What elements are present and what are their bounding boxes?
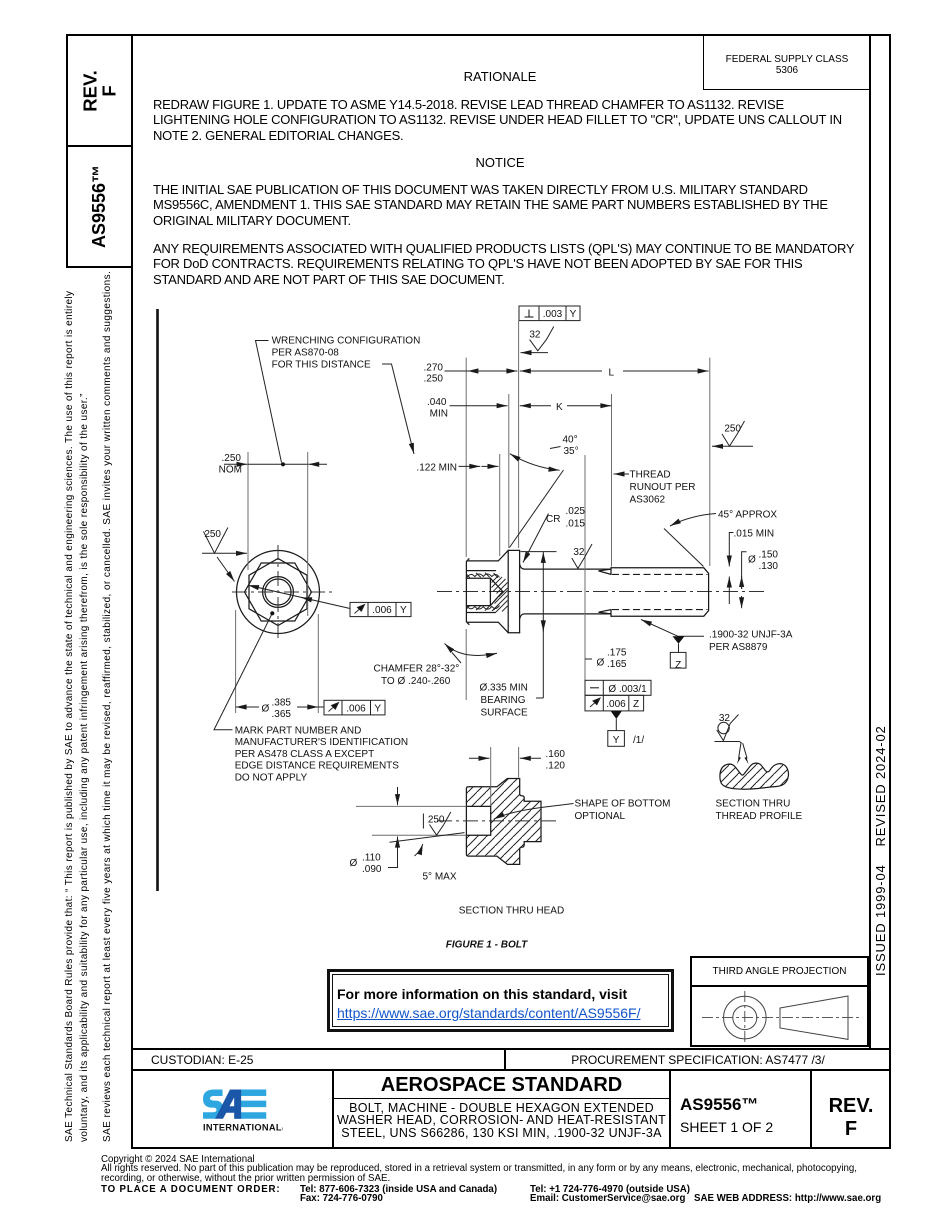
svg-text:.250: .250 xyxy=(222,453,242,464)
svg-text:PER AS8879: PER AS8879 xyxy=(709,642,768,653)
svg-text:MARK PART NUMBER AND: MARK PART NUMBER AND xyxy=(235,726,362,737)
svg-text:.015: .015 xyxy=(566,519,586,530)
svg-text:FIGURE 1 - BOLT: FIGURE 1 - BOLT xyxy=(446,940,528,951)
svg-text:250: 250 xyxy=(428,814,445,825)
svg-text:Ø: Ø xyxy=(350,858,358,869)
svg-text:.175: .175 xyxy=(607,647,627,658)
svg-text:.120: .120 xyxy=(546,760,566,771)
svg-text:NOM: NOM xyxy=(219,465,242,476)
svg-text:L: L xyxy=(609,367,615,378)
svg-text:Y: Y xyxy=(374,703,381,714)
svg-text:.090: .090 xyxy=(362,864,382,875)
svg-text:MIN: MIN xyxy=(430,408,448,419)
svg-text:.365: .365 xyxy=(272,709,292,720)
svg-text:.130: .130 xyxy=(759,561,779,572)
svg-text:Y: Y xyxy=(400,605,407,616)
svg-text:BEARING: BEARING xyxy=(481,695,526,706)
svg-text:32: 32 xyxy=(529,330,541,341)
svg-text:.110: .110 xyxy=(362,852,381,863)
svg-text:AS3062: AS3062 xyxy=(630,495,666,506)
svg-text:EDGE DISTANCE REQUIREMENTS: EDGE DISTANCE REQUIREMENTS xyxy=(235,761,400,772)
svg-text:INTERNATIONAL®: INTERNATIONAL® xyxy=(203,1122,283,1132)
svg-text:/1/: /1/ xyxy=(633,735,644,746)
svg-text:45° APPROX: 45° APPROX xyxy=(718,510,777,521)
svg-text:Y: Y xyxy=(613,735,620,746)
svg-text:TO Ø .240-.260: TO Ø .240-.260 xyxy=(381,676,451,687)
svg-text:FOR THIS DISTANCE: FOR THIS DISTANCE xyxy=(272,360,371,371)
svg-text:Ø.335 MIN: Ø.335 MIN xyxy=(480,683,528,694)
svg-text:SECTION THRU HEAD: SECTION THRU HEAD xyxy=(459,905,564,916)
svg-text:PER AS870-08: PER AS870-08 xyxy=(272,348,340,359)
svg-text:.040: .040 xyxy=(427,397,447,408)
svg-text:Ø: Ø xyxy=(597,657,605,668)
svg-text:32: 32 xyxy=(573,547,585,558)
svg-text:.015 MIN: .015 MIN xyxy=(734,529,775,540)
svg-text:.006: .006 xyxy=(606,699,626,710)
svg-text:40°: 40° xyxy=(563,434,578,445)
svg-text:.160: .160 xyxy=(546,749,566,760)
svg-text:.150: .150 xyxy=(759,549,779,560)
svg-text:WRENCHING CONFIGURATION: WRENCHING CONFIGURATION xyxy=(272,336,421,347)
svg-text:CHAMFER 28°-32°: CHAMFER 28°-32° xyxy=(374,663,460,674)
svg-text:250: 250 xyxy=(724,424,741,435)
svg-text:Z: Z xyxy=(675,660,681,671)
svg-text:.003: .003 xyxy=(543,309,563,320)
svg-text:5° MAX: 5° MAX xyxy=(423,871,457,882)
svg-text:.025: .025 xyxy=(566,506,586,517)
svg-text:.250: .250 xyxy=(424,373,444,384)
svg-text:.006: .006 xyxy=(372,605,392,616)
svg-text:THREAD PROFILE: THREAD PROFILE xyxy=(716,811,803,822)
svg-text:K: K xyxy=(556,402,563,413)
svg-text:35°: 35° xyxy=(564,446,579,457)
svg-text:.385: .385 xyxy=(272,697,292,708)
svg-text:OPTIONAL: OPTIONAL xyxy=(575,811,626,822)
svg-text:Z: Z xyxy=(633,699,639,710)
svg-text:SURFACE: SURFACE xyxy=(481,708,529,719)
svg-text:SHAPE OF BOTTOM: SHAPE OF BOTTOM xyxy=(575,798,671,809)
svg-text:THREAD: THREAD xyxy=(630,470,671,481)
svg-text:DO NOT APPLY: DO NOT APPLY xyxy=(235,772,308,783)
svg-text:PER AS478 CLASS A EXCEPT: PER AS478 CLASS A EXCEPT xyxy=(235,749,375,760)
svg-text:CR: CR xyxy=(546,514,560,525)
svg-text:Y: Y xyxy=(570,309,577,320)
svg-text:.1900-32 UNJF-3A: .1900-32 UNJF-3A xyxy=(709,630,793,641)
svg-text:.006: .006 xyxy=(346,703,366,714)
svg-text:Ø .003/1: Ø .003/1 xyxy=(608,684,647,695)
svg-text:.270: .270 xyxy=(424,362,444,373)
svg-text:MANUFACTURER'S IDENTIFICATION: MANUFACTURER'S IDENTIFICATION xyxy=(235,737,408,748)
svg-text:RUNOUT PER: RUNOUT PER xyxy=(630,482,696,493)
svg-text:Ø: Ø xyxy=(262,704,270,715)
svg-text:.122 MIN: .122 MIN xyxy=(416,462,457,473)
svg-text:.165: .165 xyxy=(607,659,627,670)
svg-text:Ø: Ø xyxy=(748,554,756,565)
svg-text:SECTION THRU: SECTION THRU xyxy=(716,798,791,809)
